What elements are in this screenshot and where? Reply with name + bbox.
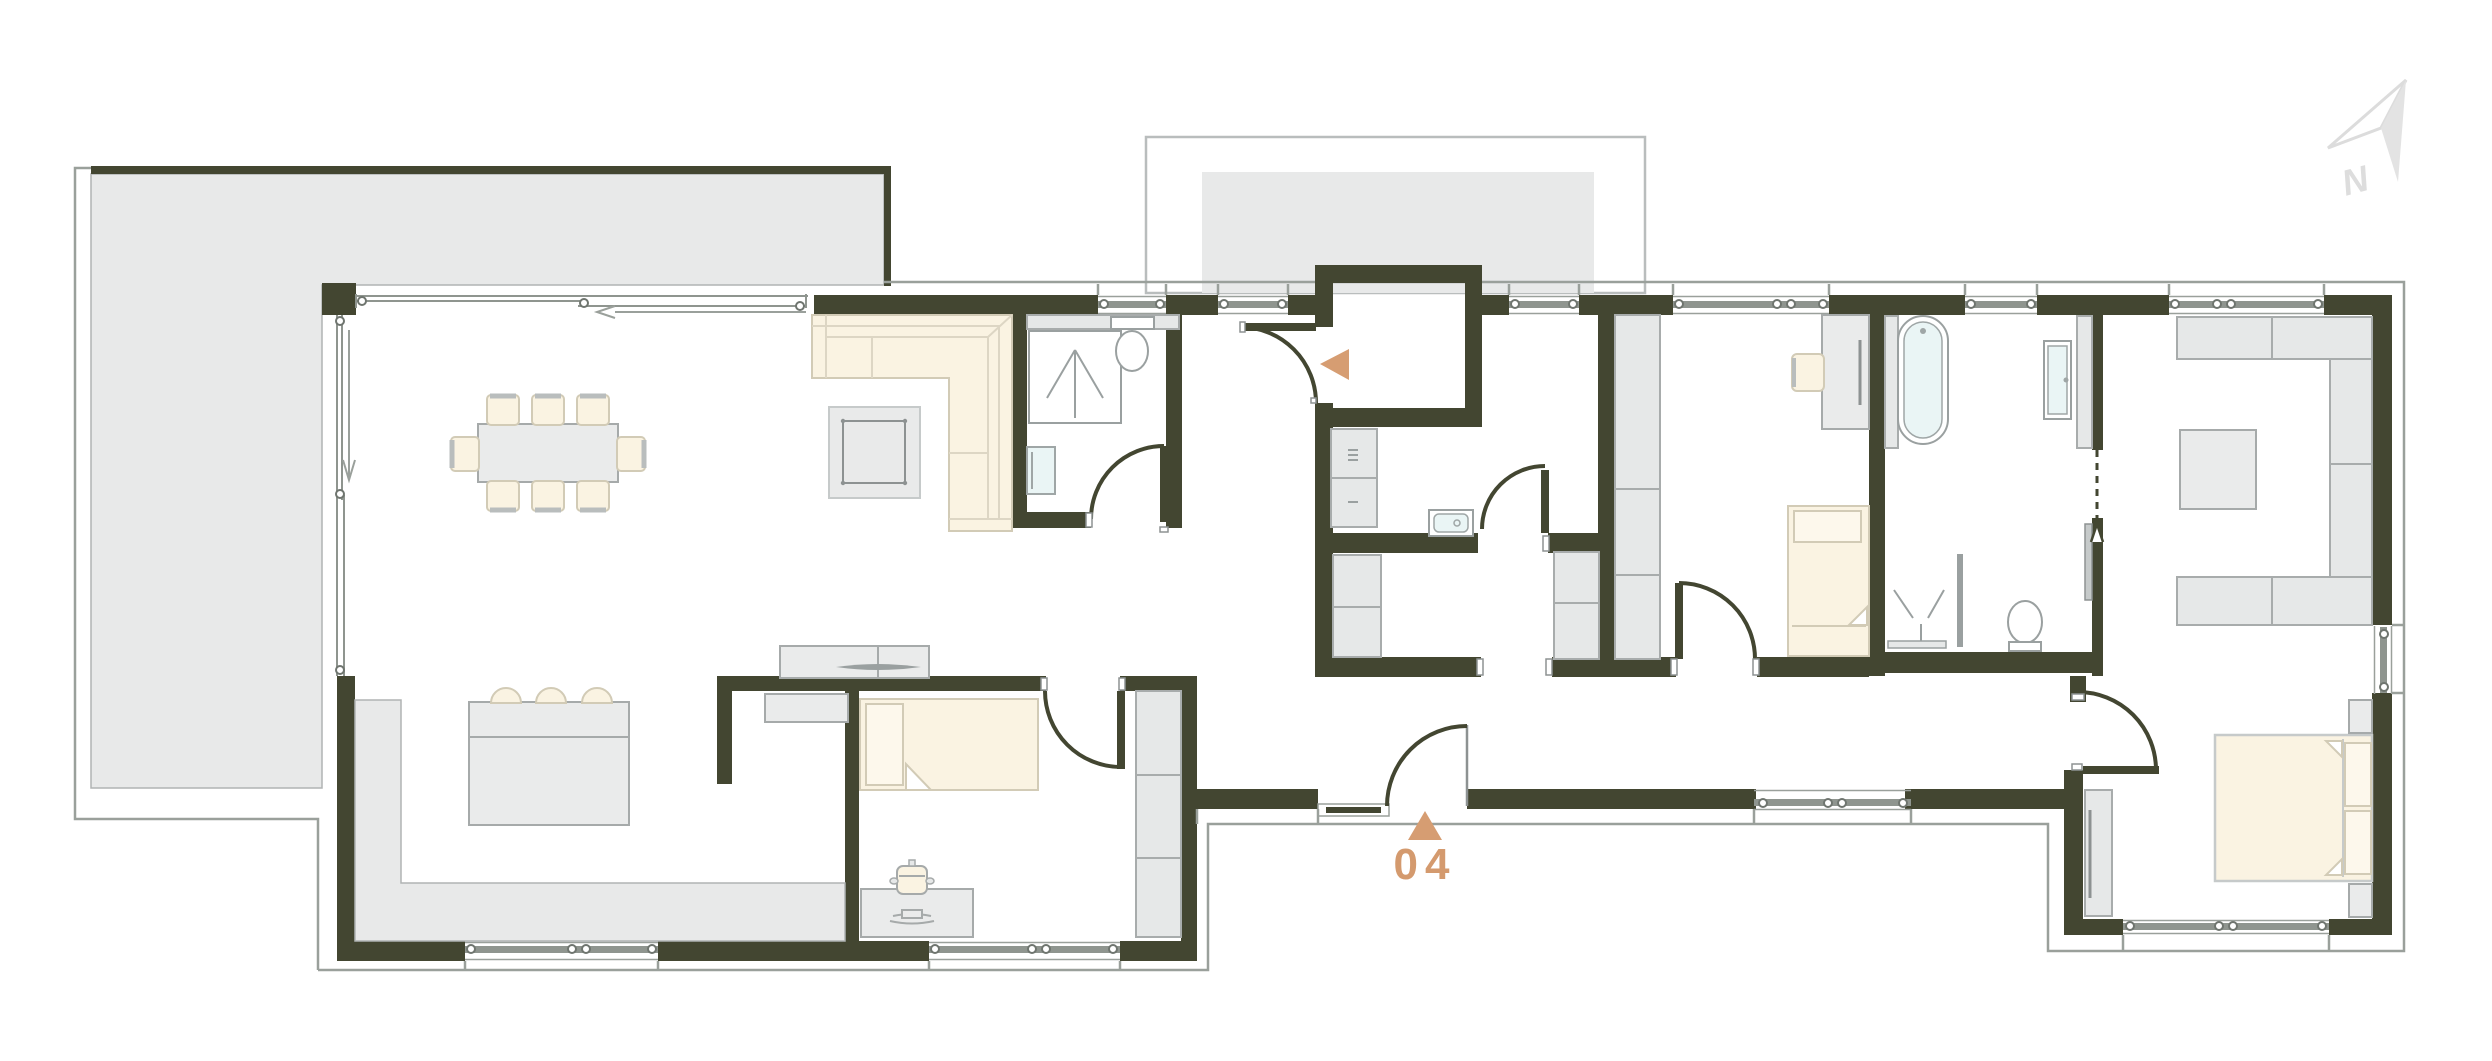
svg-text:04: 04 [1394,840,1457,889]
